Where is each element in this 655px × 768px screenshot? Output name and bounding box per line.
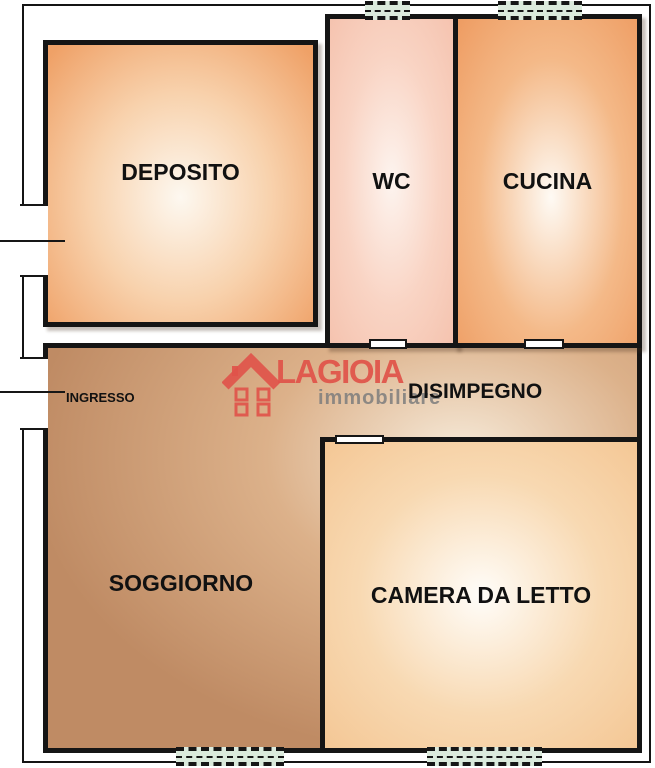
window-symbol-bottom-camera: [427, 747, 542, 766]
room-label-wc: WC: [372, 168, 410, 195]
door-opening-cucina: [524, 339, 564, 349]
window-symbol-top-wc: [365, 1, 410, 20]
room-label-disimpegno: DISIMPEGNO: [408, 380, 542, 404]
room-wc: WC: [325, 14, 458, 348]
floor-plan-canvas: DEPOSITO WC CUCINA CAMERA DA LETTO DISIM…: [0, 0, 655, 768]
door-opening-camera: [335, 435, 384, 444]
window-symbol-bottom-soggiorno: [176, 747, 284, 766]
room-label-cucina: CUCINA: [503, 168, 592, 195]
room-camera-da-letto: CAMERA DA LETTO: [320, 437, 642, 753]
brand-name: LAGIOIA: [276, 353, 403, 391]
room-deposito: DEPOSITO: [43, 40, 318, 327]
room-cucina: CUCINA: [453, 14, 642, 348]
window-leader-line: [0, 240, 65, 242]
room-label-deposito: DEPOSITO: [121, 159, 239, 186]
house-icon: [222, 353, 280, 417]
door-opening-wc: [369, 339, 407, 349]
room-label-soggiorno: SOGGIORNO: [45, 570, 317, 597]
entrance-door-opening: [20, 357, 48, 430]
room-label-camera-da-letto: CAMERA DA LETTO: [371, 582, 591, 609]
window-symbol-top-cucina: [498, 1, 582, 20]
entrance-leader-line: [0, 391, 65, 393]
room-label-ingresso: INGRESSO: [66, 390, 135, 405]
